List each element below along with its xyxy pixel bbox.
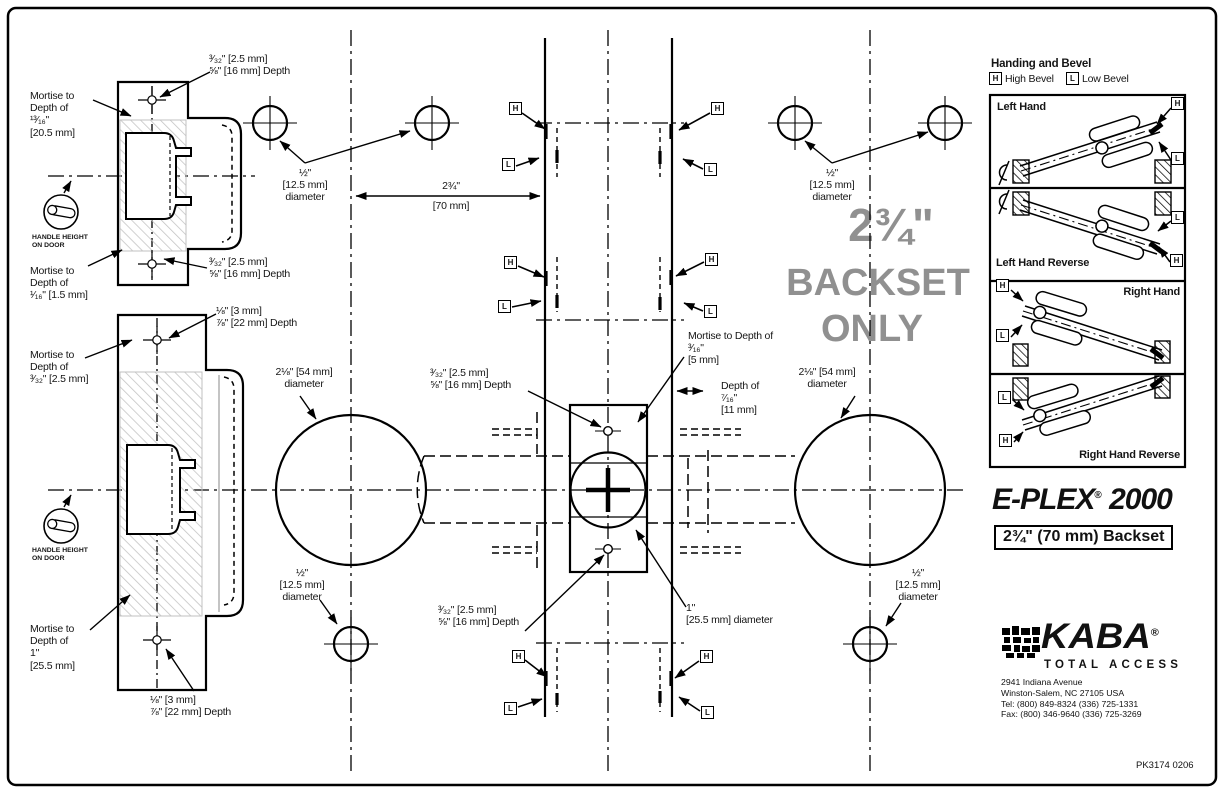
product-number: 2000 <box>1102 483 1172 516</box>
bevel-marker-arrows <box>512 113 710 711</box>
legend-low-bevel-marker: L <box>1066 72 1079 85</box>
label-hole-center-bottom: ³⁄₃₂" [2.5 mm] ⅝" [16 mm] Depth <box>438 604 519 628</box>
mortise-lock-prep <box>570 405 647 572</box>
legend-high-bevel-label: High Bevel <box>1005 73 1054 85</box>
product-logo: E-PLEX® 2000 <box>992 483 1172 517</box>
label-mortise-3-32: Mortise to Depth of ³⁄₃₂" [2.5 mm] <box>30 349 88 386</box>
dimension-backset-inches: 2¾" <box>415 180 487 192</box>
kaba-wordmark: KABA® <box>1041 618 1159 658</box>
dimension-backset-mm: [70 mm] <box>415 200 487 212</box>
handing-title: Handing and Bevel <box>991 58 1091 71</box>
legend-low-bevel-label: Low Bevel <box>1082 73 1129 85</box>
faceplate-deadbolt-view <box>118 315 243 690</box>
bevel-marker-l: L <box>704 163 717 176</box>
panel-label-right-hand: Right Hand <box>1082 286 1180 299</box>
legend-high-bevel-marker: H <box>989 72 1002 85</box>
kaba-tagline: TOTAL ACCESS <box>1044 659 1182 671</box>
label-depth-7-16: Depth of ⁷⁄₁₆" [11 mm] <box>721 380 759 417</box>
bevel-marker-h: H <box>705 253 718 266</box>
registered-mark: ® <box>1151 627 1159 638</box>
bevel-marker-h: H <box>1171 97 1184 110</box>
label-mortise-3-16: Mortise to Depth of ³⁄₁₆" [5 mm] <box>688 330 773 367</box>
bevel-marker-h: H <box>996 279 1009 292</box>
label-mortise-1in: Mortise to Depth of 1" [25.5 mm] <box>30 623 75 672</box>
label-dia-1in: 1" [25.5 mm] diameter <box>686 602 773 626</box>
bevel-marker-l: L <box>1171 152 1184 165</box>
bevel-marker-l: L <box>996 329 1009 342</box>
label-mortise-13-16: Mortise to Depth of ¹³⁄₁₆" [20.5 mm] <box>30 90 75 139</box>
bevel-marker-l: L <box>701 706 714 719</box>
kaba-text: KABA <box>1041 618 1151 657</box>
panel-label-left-hand: Left Hand <box>997 101 1046 114</box>
label-hole18-top: ⅛" [3 mm] ⅞" [22 mm] Depth <box>216 305 297 329</box>
label-half-dia-top-right: ½" [12.5 mm] diameter <box>790 167 874 204</box>
handing-panel <box>990 95 1185 467</box>
installation-template-page: 2¾" BACKSET ONLY <box>0 0 1225 794</box>
backset-callout-box: 2¾" (70 mm) Backset <box>994 525 1173 550</box>
bevel-marker-h: H <box>999 434 1012 447</box>
label-mortise-1-16: Mortise to Depth of ¹⁄₁₆" [1.5 mm] <box>30 265 88 302</box>
panel-label-left-hand-reverse: Left Hand Reverse <box>996 257 1089 270</box>
bevel-marker-l: L <box>998 391 1011 404</box>
kaba-symbol <box>1002 626 1040 658</box>
company-address: 2941 Indiana Avenue Winston-Salem, NC 27… <box>1001 677 1142 720</box>
label-half-dia-bottom-right: ½" [12.5 mm] diameter <box>876 567 960 604</box>
label-handle-height-1: HANDLE HEIGHT ON DOOR <box>32 234 112 251</box>
part-number: PK3174 0206 <box>1136 760 1194 771</box>
label-half-dia-top-left: ½" [12.5 mm] diameter <box>263 167 347 204</box>
faceplate-latch-view <box>118 82 241 285</box>
product-name: E-PLEX <box>992 483 1094 516</box>
bevel-marker-l: L <box>704 305 717 318</box>
left-hand-illustration <box>999 113 1171 185</box>
bevel-marker-h: H <box>504 256 517 269</box>
bevel-marker-h: H <box>1170 254 1183 267</box>
label-hole18-bottom: ⅛" [3 mm] ⅞" [22 mm] Depth <box>150 694 231 718</box>
left-hand-reverse-illustration <box>999 190 1171 261</box>
bevel-marker-l: L <box>502 158 515 171</box>
right-hand-reverse-illustration <box>1013 376 1170 438</box>
label-hole-bottom-left: ³⁄₃₂" [2.5 mm] ⅝" [16 mm] Depth <box>209 256 290 280</box>
label-half-dia-bottom-left: ½" [12.5 mm] diameter <box>260 567 344 604</box>
panel-label-right-hand-reverse: Right Hand Reverse <box>1058 449 1180 462</box>
label-handle-height-2: HANDLE HEIGHT ON DOOR <box>32 547 112 564</box>
bevel-marker-h: H <box>509 102 522 115</box>
bevel-marker-h: H <box>700 650 713 663</box>
bevel-marker-l: L <box>498 300 511 313</box>
label-dia218-left: 2⅛" [54 mm] diameter <box>252 366 356 390</box>
panel-bevel-arrows <box>1011 108 1171 442</box>
bevel-marker-h: H <box>512 650 525 663</box>
label-dia218-right: 2⅛" [54 mm] diameter <box>775 366 879 390</box>
label-hole-top-left: ³⁄₃₂" [2.5 mm] ⅝" [16 mm] Depth <box>209 53 290 77</box>
bevel-marker-l: L <box>504 702 517 715</box>
dimension-lines <box>356 196 703 391</box>
right-hand-illustration <box>1013 290 1170 366</box>
registered-mark: ® <box>1094 490 1101 501</box>
bevel-marker-h: H <box>711 102 724 115</box>
label-hole-center-top: ³⁄₃₂" [2.5 mm] ⅝" [16 mm] Depth <box>430 367 511 391</box>
drawing-linework <box>0 0 1225 794</box>
bevel-marker-l: L <box>1171 211 1184 224</box>
